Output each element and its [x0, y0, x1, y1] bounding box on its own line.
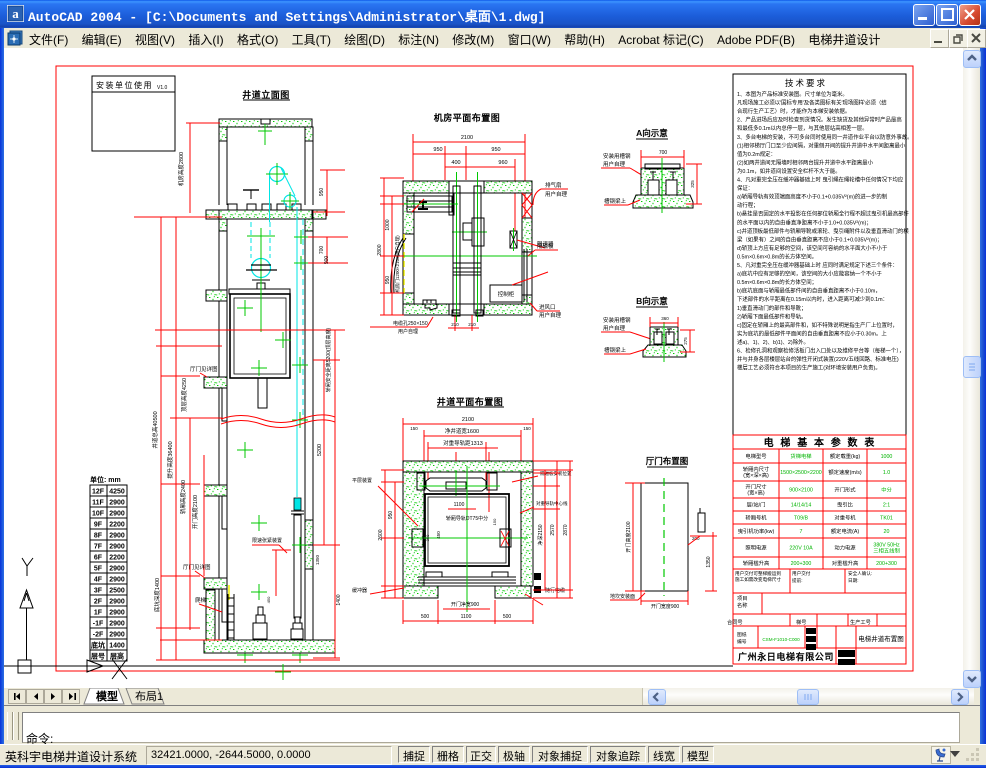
svg-text:对重导轨距1313: 对重导轨距1313 [443, 439, 483, 447]
svg-text:14/14/14: 14/14/14 [791, 503, 812, 509]
svg-text:额定速度(m/s): 额定速度(m/s) [828, 468, 861, 476]
svg-text:照明电源: 照明电源 [745, 544, 767, 552]
svg-text:700: 700 [659, 150, 668, 156]
svg-text:950: 950 [433, 147, 442, 153]
svg-text:用户交付: 用户交付 [792, 570, 811, 577]
svg-text:2:1: 2:1 [883, 503, 890, 509]
svg-text:1、本图为产品标准安装图。尺寸单位为毫米。: 1、本图为产品标准安装图。尺寸单位为毫米。 [737, 90, 848, 98]
svg-text:b)悬挂是否固定的水平投影在任何部位轿厢全行程不超过曳引机最: b)悬挂是否固定的水平投影在任何部位轿厢全行程不超过曳引机最高部件 [737, 210, 910, 218]
svg-text:1100: 1100 [454, 502, 465, 508]
svg-text:模型: 模型 [96, 689, 118, 703]
svg-text:(宽×高): (宽×高) [747, 489, 764, 497]
svg-text:隔磁板: 隔磁板 [537, 242, 554, 250]
svg-text:施工如需改变电梯尺寸: 施工如需改变电梯尺寸 [735, 576, 781, 583]
svg-text:底坑深度1400: 底坑深度1400 [153, 578, 161, 612]
svg-text:开门高度2100: 开门高度2100 [191, 495, 199, 529]
svg-text:220V 10A: 220V 10A [789, 546, 813, 552]
svg-text:进风口: 进风口 [539, 303, 556, 311]
svg-text:井道平面布置图: 井道平面布置图 [437, 396, 504, 407]
svg-text:轿厢高度2400: 轿厢高度2400 [179, 480, 187, 514]
svg-text:用户自理: 用户自理 [603, 160, 626, 168]
svg-text:动力电源: 动力电源 [834, 544, 856, 552]
svg-text:d)轿顶上方应有足够的空间，该空间可容纳的水平面大小不小于: d)轿顶上方应有足够的空间，该空间可容纳的水平面大小不小于 [737, 244, 888, 252]
svg-text:c)固定在轿厢上的最高部件和，如不特殊说明是指生产厂上位置时: c)固定在轿厢上的最高部件和，如不特殊说明是指生产厂上位置时， [737, 321, 898, 329]
svg-text:实为底坑的最低部件平面间的自由垂直距离不应小于0.30m。上: 实为底坑的最低部件平面间的自由垂直距离不应小于0.30m。上 [737, 329, 887, 337]
svg-text:电梯型号: 电梯型号 [745, 452, 766, 460]
svg-text:a)底坑中应有足够的空间，该空间的大小应能容纳一个不小于: a)底坑中应有足够的空间，该空间的大小应能容纳一个不小于 [737, 270, 883, 278]
svg-text:2200: 2200 [109, 555, 125, 562]
svg-text:安装用槽钢: 安装用槽钢 [603, 152, 631, 160]
svg-text:2900: 2900 [109, 544, 125, 551]
svg-text:缓冲器: 缓冲器 [352, 587, 367, 594]
svg-text:CSM-F1010-C000: CSM-F1010-C000 [762, 637, 800, 642]
svg-text:b)底坑底面与轿厢最低部件间的自由垂直距离不小于0.10m，: b)底坑底面与轿厢最低部件间的自由垂直距离不小于0.10m， [737, 287, 881, 295]
svg-text:合同号: 合同号 [727, 618, 743, 626]
svg-text:2900: 2900 [109, 500, 125, 507]
svg-text:控制柜: 控制柜 [498, 290, 515, 298]
svg-text:为0.1m，如井道间设置安全栏杆不大于能。: 为0.1m，如井道间设置安全栏杆不大于能。 [737, 167, 841, 175]
svg-text:11F: 11F [92, 500, 104, 507]
svg-text:2、产品进场后应及时检查到货情况。发生缺货及其他异常时产品最: 2、产品进场后应及时检查到货情况。发生缺货及其他异常时产品最高 [737, 116, 902, 124]
svg-text:2900: 2900 [109, 577, 125, 584]
svg-text:提升高度36400: 提升高度36400 [166, 441, 174, 478]
svg-text:底坑: 底坑 [91, 641, 105, 650]
svg-text:150: 150 [492, 518, 497, 525]
svg-text:400: 400 [451, 160, 460, 166]
svg-text:层高: 层高 [109, 652, 124, 661]
svg-text:梯号: 梯号 [796, 618, 806, 626]
svg-text:对重槛升高: 对重槛升高 [832, 559, 859, 567]
svg-text:日期:: 日期: [848, 578, 858, 584]
svg-text:厅门见详图: 厅门见详图 [190, 365, 218, 373]
svg-text:安装单位使用: 安装单位使用 [96, 80, 153, 90]
svg-text:1F: 1F [94, 610, 103, 617]
svg-text:项目: 项目 [737, 595, 747, 602]
svg-text:2200: 2200 [109, 522, 125, 529]
svg-text:2900: 2900 [109, 599, 125, 606]
svg-text:曳引比: 曳引比 [837, 501, 853, 509]
svg-text:电缆孔250×150: 电缆孔250×150 [393, 320, 428, 327]
svg-text:轿厢号机: 轿厢号机 [745, 514, 767, 522]
svg-text:700: 700 [319, 246, 325, 255]
svg-text:200+300: 200+300 [876, 561, 897, 567]
svg-text:T09/B: T09/B [794, 516, 809, 522]
svg-text:3F: 3F [94, 588, 103, 595]
svg-text:950: 950 [491, 147, 500, 153]
svg-text:6F: 6F [94, 555, 103, 562]
svg-text:1.0: 1.0 [883, 470, 890, 476]
svg-text:1000: 1000 [385, 219, 391, 230]
svg-text:用户自理: 用户自理 [539, 311, 562, 319]
svg-text:顶层高度4250: 顶层高度4250 [180, 378, 188, 412]
svg-text:450: 450 [436, 531, 441, 539]
svg-text:机房高度2800: 机房高度2800 [177, 152, 185, 186]
svg-text:2870: 2870 [563, 524, 569, 535]
svg-text:2800: 2800 [377, 244, 383, 255]
svg-text:20: 20 [884, 529, 890, 535]
svg-text:210: 210 [468, 322, 476, 327]
svg-text:技术要求: 技术要求 [785, 78, 827, 88]
svg-text:层号: 层号 [90, 652, 105, 661]
svg-text:4、凡对重完全压在缓冲器基础上时 曳引绳在绳轮槽中任何情况下: 4、凡对重完全压在缓冲器基础上时 曳引绳在绳轮槽中任何情况下均应 [737, 176, 904, 184]
svg-text:平层装置: 平层装置 [352, 477, 372, 484]
svg-text:楼层工艺必须符合本项目的生产施工(对环境安装用户负责)。: 楼层工艺必须符合本项目的生产施工(对环境安装用户负责)。 [737, 364, 881, 372]
svg-text:槽钢梁上: 槽钢梁上 [604, 197, 627, 205]
svg-text:12F: 12F [92, 489, 105, 496]
svg-text:1350: 1350 [706, 556, 712, 567]
svg-text:B向示意: B向示意 [636, 296, 668, 306]
svg-text:机房平面布置图: 机房平面布置图 [434, 112, 501, 123]
svg-text:7: 7 [800, 529, 803, 535]
svg-text:950: 950 [388, 511, 394, 520]
svg-text:900: 900 [324, 256, 330, 265]
svg-text:(宽×深×高): (宽×深×高) [743, 471, 769, 479]
svg-text:对重导轨中心线: 对重导轨中心线 [536, 500, 568, 507]
svg-text:c)井道顶板最低部件与轿厢导靴或滚轮、曳引绳附件以及垂直滑动: c)井道顶板最低部件与轿厢导靴或滚轮、曳引绳附件以及垂直滑动门的横 [737, 227, 909, 235]
svg-text:的水平面以内的自由垂直净距离不小于1.0+0.035V²(m: 的水平面以内的自由垂直净距离不小于1.0+0.035V²(m)； [737, 218, 872, 226]
svg-text:保证：: 保证： [737, 184, 753, 192]
svg-text:2900: 2900 [109, 533, 125, 540]
svg-text:值为0.2m规定：: 值为0.2m规定： [737, 150, 776, 158]
svg-text:中分: 中分 [881, 486, 892, 494]
svg-text:安装用槽钢: 安装用槽钢 [603, 316, 631, 324]
svg-text:额定载重(kg): 额定载重(kg) [830, 452, 861, 460]
svg-text:图纸: 图纸 [737, 631, 747, 638]
svg-text:2500: 2500 [109, 588, 125, 595]
svg-text:(2)如两井道间无隔墙时相邻两台提升井道中水平距离最小: (2)如两井道间无隔墙时相邻两台提升井道中水平距离最小 [737, 158, 874, 166]
svg-text:开门高度2100: 开门高度2100 [625, 521, 632, 552]
svg-text:电 梯 基 本 参 数 表: 电 梯 基 本 参 数 表 [764, 436, 877, 449]
svg-text:用户交付可整梯搬运到: 用户交付可整梯搬运到 [735, 570, 781, 577]
svg-text:述a)、1)、2)、b)1)、2)除外。: 述a)、1)、2)、b)1)、2)除外。 [737, 338, 809, 346]
svg-text:325: 325 [690, 180, 695, 188]
svg-text:950: 950 [385, 276, 391, 285]
svg-text:梁（如果有）之间的自由垂直距离不应小于0.1+0.035V²: 梁（如果有）之间的自由垂直距离不应小于0.1+0.035V²(m)； [737, 235, 882, 243]
svg-text:编号: 编号 [737, 638, 747, 645]
svg-text:350: 350 [425, 534, 430, 541]
svg-text:层/站/门: 层/站/门 [747, 501, 766, 509]
svg-text:三相五线制: 三相五线制 [873, 547, 900, 555]
svg-text:井道立面图: 井道立面图 [242, 89, 290, 100]
svg-text:开门形式: 开门形式 [834, 486, 856, 494]
svg-text:2570: 2570 [550, 524, 556, 535]
svg-text:单位: mm: 单位: mm [90, 475, 121, 484]
svg-text:槽钢梁上: 槽钢梁上 [604, 346, 627, 354]
svg-text:1350: 1350 [315, 554, 320, 565]
svg-text:1)垂直滑动门的部件和导靴；: 1)垂直滑动门的部件和导靴； [737, 304, 806, 312]
svg-text:爬梯: 爬梯 [195, 596, 207, 604]
svg-text:10F: 10F [92, 511, 105, 518]
svg-text:额定电流(A): 额定电流(A) [831, 527, 859, 535]
svg-text:凡现场施工必须以'国标专用'及各类图标有关'现场图样'必须（: 凡现场施工必须以'国标专用'及各类图标有关'现场图样'必须（结 [737, 99, 887, 107]
svg-text:开门尺寸: 开门尺寸 [745, 482, 767, 490]
svg-text:排气扇: 排气扇 [545, 181, 562, 189]
svg-text:厅门布置图: 厅门布置图 [646, 456, 689, 466]
svg-text:2100: 2100 [461, 135, 473, 141]
svg-text:轿厢槛升高: 轿厢槛升高 [743, 559, 770, 567]
svg-text:5、凡对重完全压在缓冲器基础上时 应同时满足规定下述三个条件: 5、凡对重完全压在缓冲器基础上时 应同时满足规定下述三个条件： [737, 261, 898, 269]
svg-text:2900: 2900 [109, 511, 125, 518]
svg-text:安全人确认:: 安全人确认: [848, 570, 872, 577]
svg-text:井道总高40500: 井道总高40500 [151, 411, 159, 448]
svg-text:机房门1200×2100(用户自理): 机房门1200×2100(用户自理) [394, 235, 401, 293]
svg-text:2900: 2900 [109, 566, 125, 573]
svg-text:电梯井道布置图: 电梯井道布置图 [858, 634, 904, 643]
svg-text:限速张紧装置: 限速张紧装置 [252, 537, 282, 544]
svg-text:5F: 5F [94, 566, 103, 573]
svg-text:开门宽度900: 开门宽度900 [651, 603, 680, 610]
svg-text:下述部件的水平距离在0.15m以内时，进入距离可减少到0.1: 下述部件的水平距离在0.15m以内时，进入距离可减少到0.1m： [737, 295, 888, 303]
svg-text:布局1: 布局1 [135, 690, 163, 703]
svg-text:7F: 7F [94, 544, 103, 551]
svg-text:用户自理: 用户自理 [545, 190, 568, 198]
svg-text:500: 500 [503, 614, 512, 620]
svg-text:4250: 4250 [109, 489, 125, 496]
svg-text:900×2100: 900×2100 [789, 488, 813, 494]
svg-text:450: 450 [266, 596, 271, 603]
svg-text:6、检修孔洞和观察检修活板门出入口处以及维修平台等（每梯一个: 6、检修孔洞和观察检修活板门出入口处以及维修平台等（每梯一个）， [737, 347, 904, 355]
svg-text:360: 360 [661, 316, 669, 321]
svg-text:0.5m×0.6m×0.8m的长方体空间；: 0.5m×0.6m×0.8m的长方体空间； [737, 278, 817, 286]
svg-text:2)轿厢下面最低部件和导轨。: 2)轿厢下面最低部件和导轨。 [737, 312, 806, 320]
svg-text:4F: 4F [94, 577, 103, 584]
svg-text:a)轿厢导轨有效顶端面高度不小于0.1+0.035V²(m): a)轿厢导轨有效顶端面高度不小于0.1+0.035V²(m)的进一步的制 [737, 193, 887, 201]
svg-text:2900: 2900 [109, 632, 125, 639]
svg-text:净深2150: 净深2150 [537, 524, 544, 545]
svg-text:2900: 2900 [109, 621, 125, 628]
svg-text:-2F: -2F [93, 632, 104, 639]
svg-text:V1.0: V1.0 [157, 85, 168, 91]
svg-text:轿厢安全距离5200(顶层高度): 轿厢安全距离5200(顶层高度) [325, 327, 332, 392]
svg-text:曳引机功率(kw): 曳引机功率(kw) [738, 527, 775, 535]
svg-text:合现行生产工艺）时，才能作为本梯安装依据。: 合现行生产工艺）时，才能作为本梯安装依据。 [737, 107, 850, 115]
svg-text:8F: 8F [94, 533, 103, 540]
svg-text:动行程；: 动行程； [737, 201, 759, 209]
svg-text:厅门见详图: 厅门见详图 [183, 563, 211, 571]
svg-text:开门净宽900: 开门净宽900 [451, 601, 480, 608]
svg-text:地坎安装面: 地坎安装面 [610, 593, 635, 600]
svg-text:和最低多0.1m以内总停一层，与其他层站高相差一层。: 和最低多0.1m以内总停一层，与其他层站高相差一层。 [737, 124, 868, 132]
svg-text:2F: 2F [94, 599, 103, 606]
svg-text:a: a [12, 6, 19, 21]
svg-text:9F: 9F [94, 522, 103, 529]
svg-text:用户自理: 用户自理 [398, 328, 418, 335]
svg-text:950: 950 [319, 188, 325, 197]
svg-text:150: 150 [410, 426, 418, 431]
svg-text:2600: 2600 [378, 529, 384, 540]
svg-text:1400: 1400 [336, 594, 342, 605]
svg-text:960: 960 [498, 160, 507, 166]
svg-text:轿厢导轨DT75中分: 轿厢导轨DT75中分 [446, 515, 488, 522]
svg-text:并与井身各层楼层站台的弹性开闭式装置(220V五线回路、标准: 并与井身各层楼层站台的弹性开闭式装置(220V五线回路、标准电压) [737, 355, 899, 363]
svg-text:2100: 2100 [462, 417, 474, 423]
svg-text:2900: 2900 [109, 610, 125, 617]
svg-text:0.5m×0.6m×0.8m的长方体空间。: 0.5m×0.6m×0.8m的长方体空间。 [737, 252, 817, 260]
svg-text:轿厢内尺寸: 轿厢内尺寸 [743, 465, 770, 473]
svg-text:提前:: 提前: [792, 577, 802, 584]
svg-text:210: 210 [451, 322, 459, 327]
svg-text:200+300: 200+300 [791, 561, 812, 567]
svg-text:1000: 1000 [881, 454, 893, 460]
svg-text:1500×2500×2200: 1500×2500×2200 [780, 470, 822, 476]
svg-text:广州永日电梯有限公司: 广州永日电梯有限公司 [738, 651, 834, 662]
svg-text:-1F: -1F [93, 621, 104, 628]
svg-text:380V 50Hz: 380V 50Hz [873, 542, 900, 548]
svg-text:5200: 5200 [317, 444, 323, 456]
svg-text:1100: 1100 [461, 614, 472, 620]
svg-text:275: 275 [683, 337, 688, 345]
svg-text:500: 500 [421, 614, 430, 620]
svg-text:生产工号: 生产工号 [850, 618, 871, 626]
svg-text:货梯电梯: 货梯电梯 [790, 452, 812, 460]
svg-text:名称: 名称 [737, 601, 747, 609]
svg-text:净井道宽1600: 净井道宽1600 [445, 427, 479, 435]
svg-text:对重号机: 对重号机 [834, 514, 856, 522]
svg-text:3、多台电梯的安装，不可多台同时使用同一井道作业平台以防意外: 3、多台电梯的安装，不可多台同时使用同一井道作业平台以防意外事故。 [737, 133, 913, 141]
svg-text:150: 150 [523, 426, 531, 431]
svg-text:1400: 1400 [109, 643, 125, 650]
svg-text:A向示意: A向示意 [636, 128, 668, 138]
svg-text:用户自理: 用户自理 [603, 324, 626, 332]
svg-text:TK01: TK01 [880, 516, 893, 522]
svg-text:(1)相邻梯厅门口至少应间隔，对重侧开间的提升井道中水平间距: (1)相邻梯厅门口至少应间隔，对重侧开间的提升井道中水平间距离最小 [737, 141, 906, 149]
